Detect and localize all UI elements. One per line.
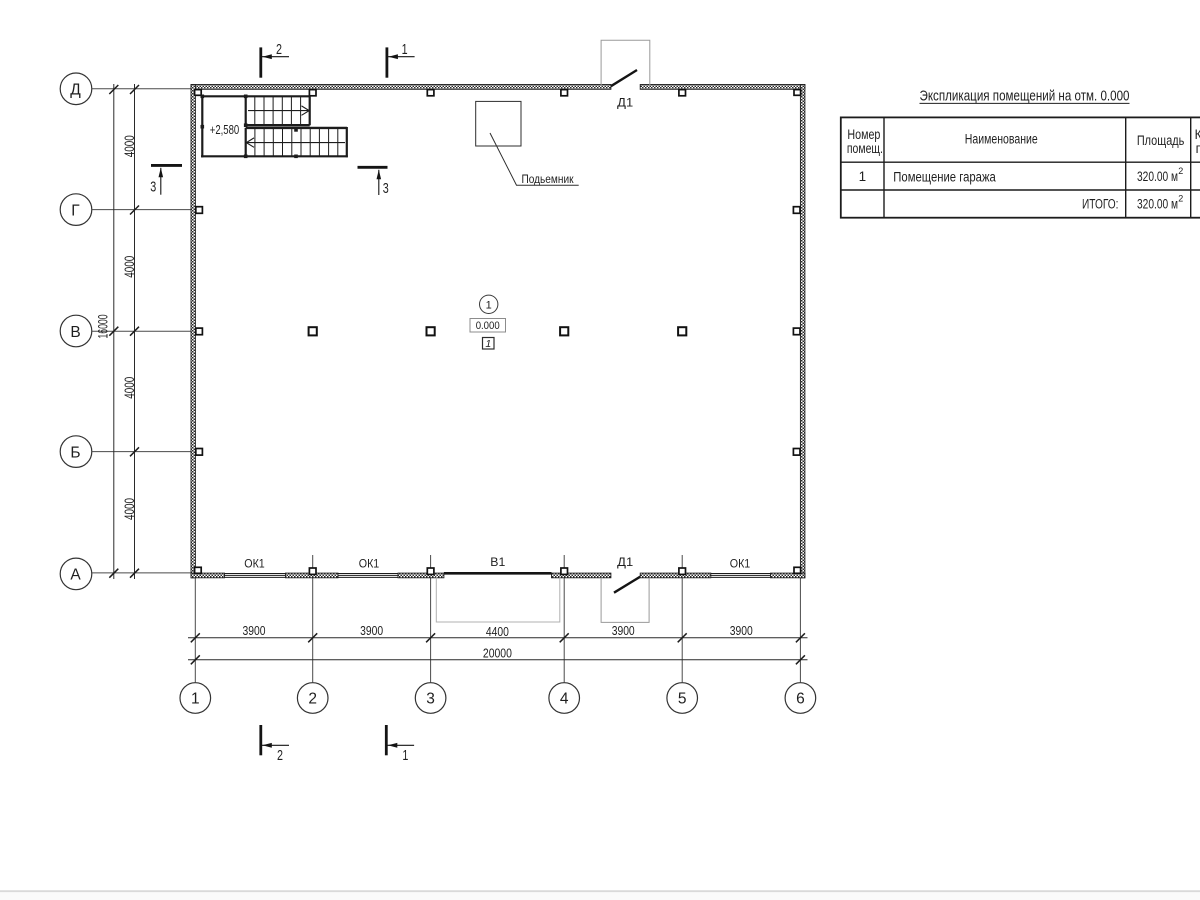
svg-text:320.00 м: 320.00 м — [1137, 169, 1178, 184]
svg-text:3: 3 — [150, 179, 156, 195]
svg-text:помещ.: помещ. — [847, 141, 883, 156]
svg-text:2: 2 — [1178, 194, 1183, 204]
svg-text:Номер: Номер — [847, 127, 880, 142]
svg-text:Б: Б — [70, 444, 80, 461]
svg-text:Площадь: Площадь — [1137, 133, 1185, 148]
svg-text:2: 2 — [1178, 166, 1183, 176]
svg-text:А: А — [70, 567, 81, 584]
svg-text:Помещение гаража: Помещение гаража — [893, 170, 996, 185]
svg-text:по: по — [1196, 141, 1200, 156]
svg-text:4000: 4000 — [122, 256, 137, 278]
svg-text:6: 6 — [796, 691, 805, 708]
svg-text:ОК1: ОК1 — [244, 557, 265, 571]
svg-text:1: 1 — [486, 300, 492, 312]
svg-text:5: 5 — [678, 691, 687, 708]
svg-text:Д1: Д1 — [617, 555, 633, 569]
svg-text:2: 2 — [308, 691, 317, 708]
svg-text:Наименование: Наименование — [965, 132, 1038, 147]
svg-text:1: 1 — [485, 338, 491, 350]
svg-text:3: 3 — [426, 691, 435, 708]
svg-text:+2,580: +2,580 — [210, 123, 240, 137]
svg-text:2: 2 — [276, 42, 282, 58]
svg-text:4: 4 — [560, 691, 569, 708]
svg-text:В1: В1 — [490, 555, 505, 569]
svg-text:1: 1 — [402, 748, 408, 764]
svg-text:ИТОГО:: ИТОГО: — [1082, 197, 1119, 212]
svg-text:Экспликация помещений на отм.: Экспликация помещений на отм. 0.000 — [920, 88, 1130, 104]
svg-text:4000: 4000 — [122, 135, 137, 157]
svg-text:Д1: Д1 — [617, 95, 633, 109]
svg-text:2: 2 — [277, 748, 283, 764]
svg-text:ОК1: ОК1 — [359, 557, 380, 571]
svg-text:3900: 3900 — [612, 624, 635, 638]
svg-text:Подьемник: Подьемник — [522, 174, 575, 186]
svg-text:3900: 3900 — [360, 624, 383, 638]
svg-text:1: 1 — [191, 691, 200, 708]
svg-text:В: В — [70, 324, 80, 341]
svg-text:320.00 м: 320.00 м — [1137, 197, 1178, 212]
svg-text:4400: 4400 — [486, 625, 509, 639]
svg-text:Г: Г — [71, 202, 80, 219]
svg-text:Д: Д — [70, 82, 81, 99]
svg-text:4000: 4000 — [122, 377, 137, 399]
svg-text:0.000: 0.000 — [476, 320, 500, 332]
svg-text:ОК1: ОК1 — [730, 557, 751, 571]
svg-text:3900: 3900 — [730, 624, 753, 638]
svg-text:16000: 16000 — [96, 315, 111, 339]
svg-text:3900: 3900 — [243, 624, 266, 638]
svg-text:3: 3 — [383, 181, 389, 197]
svg-text:1: 1 — [859, 169, 867, 184]
svg-text:1: 1 — [402, 42, 408, 58]
svg-text:20000: 20000 — [483, 646, 512, 660]
svg-text:Ка: Ка — [1195, 127, 1200, 142]
svg-text:4000: 4000 — [122, 498, 137, 520]
